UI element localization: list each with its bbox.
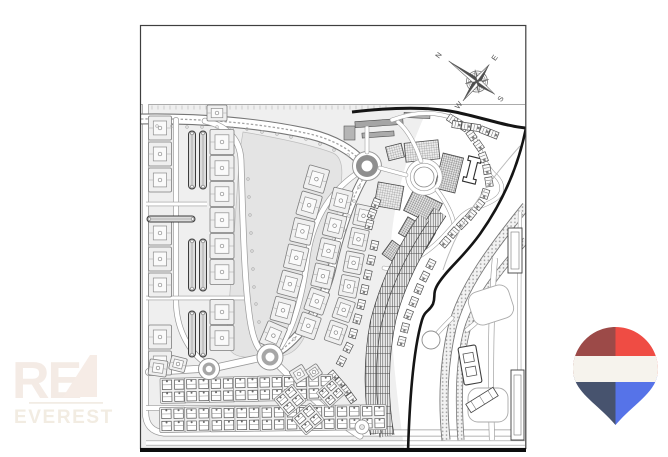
svg-text:EVEREST: EVEREST (14, 407, 114, 428)
svg-text:RE: RE (12, 352, 81, 410)
